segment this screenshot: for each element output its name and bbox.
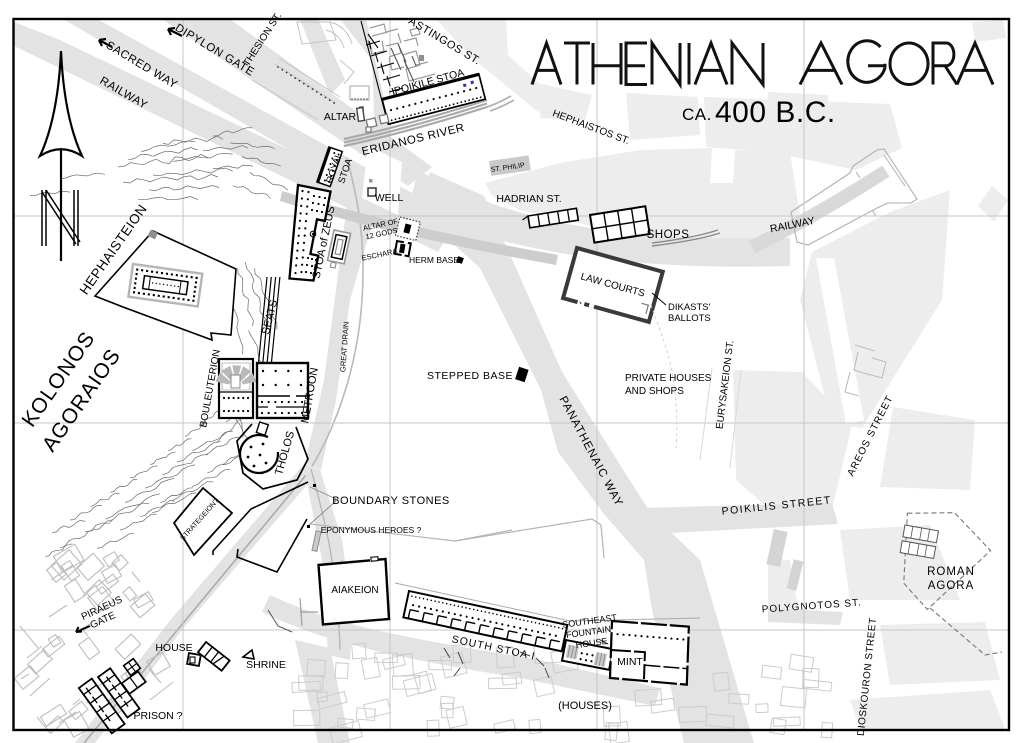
svg-text:400 B.C.: 400 B.C. <box>715 96 836 129</box>
svg-text:PRISON ?: PRISON ? <box>133 710 182 722</box>
svg-text:SHOPS: SHOPS <box>647 229 690 241</box>
svg-text:(HOUSES): (HOUSES) <box>558 700 612 712</box>
svg-text:HADRIAN ST.: HADRIAN ST. <box>496 193 561 205</box>
svg-text:WELL: WELL <box>375 192 404 204</box>
svg-text:MINT: MINT <box>617 656 643 668</box>
svg-text:BOUNDARY STONES: BOUNDARY STONES <box>332 495 450 507</box>
svg-text:BALLOTS: BALLOTS <box>668 313 711 324</box>
svg-text:SHRINE: SHRINE <box>246 659 286 671</box>
svg-text:DIKASTS': DIKASTS' <box>668 302 711 313</box>
svg-text:HERM BASE: HERM BASE <box>409 255 459 265</box>
svg-text:EPONYMOUS HEROES ?: EPONYMOUS HEROES ? <box>321 525 422 535</box>
svg-text:PRIVATE HOUSES: PRIVATE HOUSES <box>625 373 712 384</box>
svg-text:STEPPED BASE: STEPPED BASE <box>427 370 513 382</box>
svg-text:AGORA: AGORA <box>928 580 975 592</box>
svg-text:HOUSE: HOUSE <box>155 642 192 654</box>
svg-text:AND SHOPS: AND SHOPS <box>625 386 684 397</box>
svg-text:CA.: CA. <box>682 105 712 124</box>
svg-text:ROMAN: ROMAN <box>927 566 975 578</box>
svg-text:AIAKEION: AIAKEION <box>331 585 378 596</box>
svg-text:ALTAR: ALTAR <box>324 111 357 123</box>
